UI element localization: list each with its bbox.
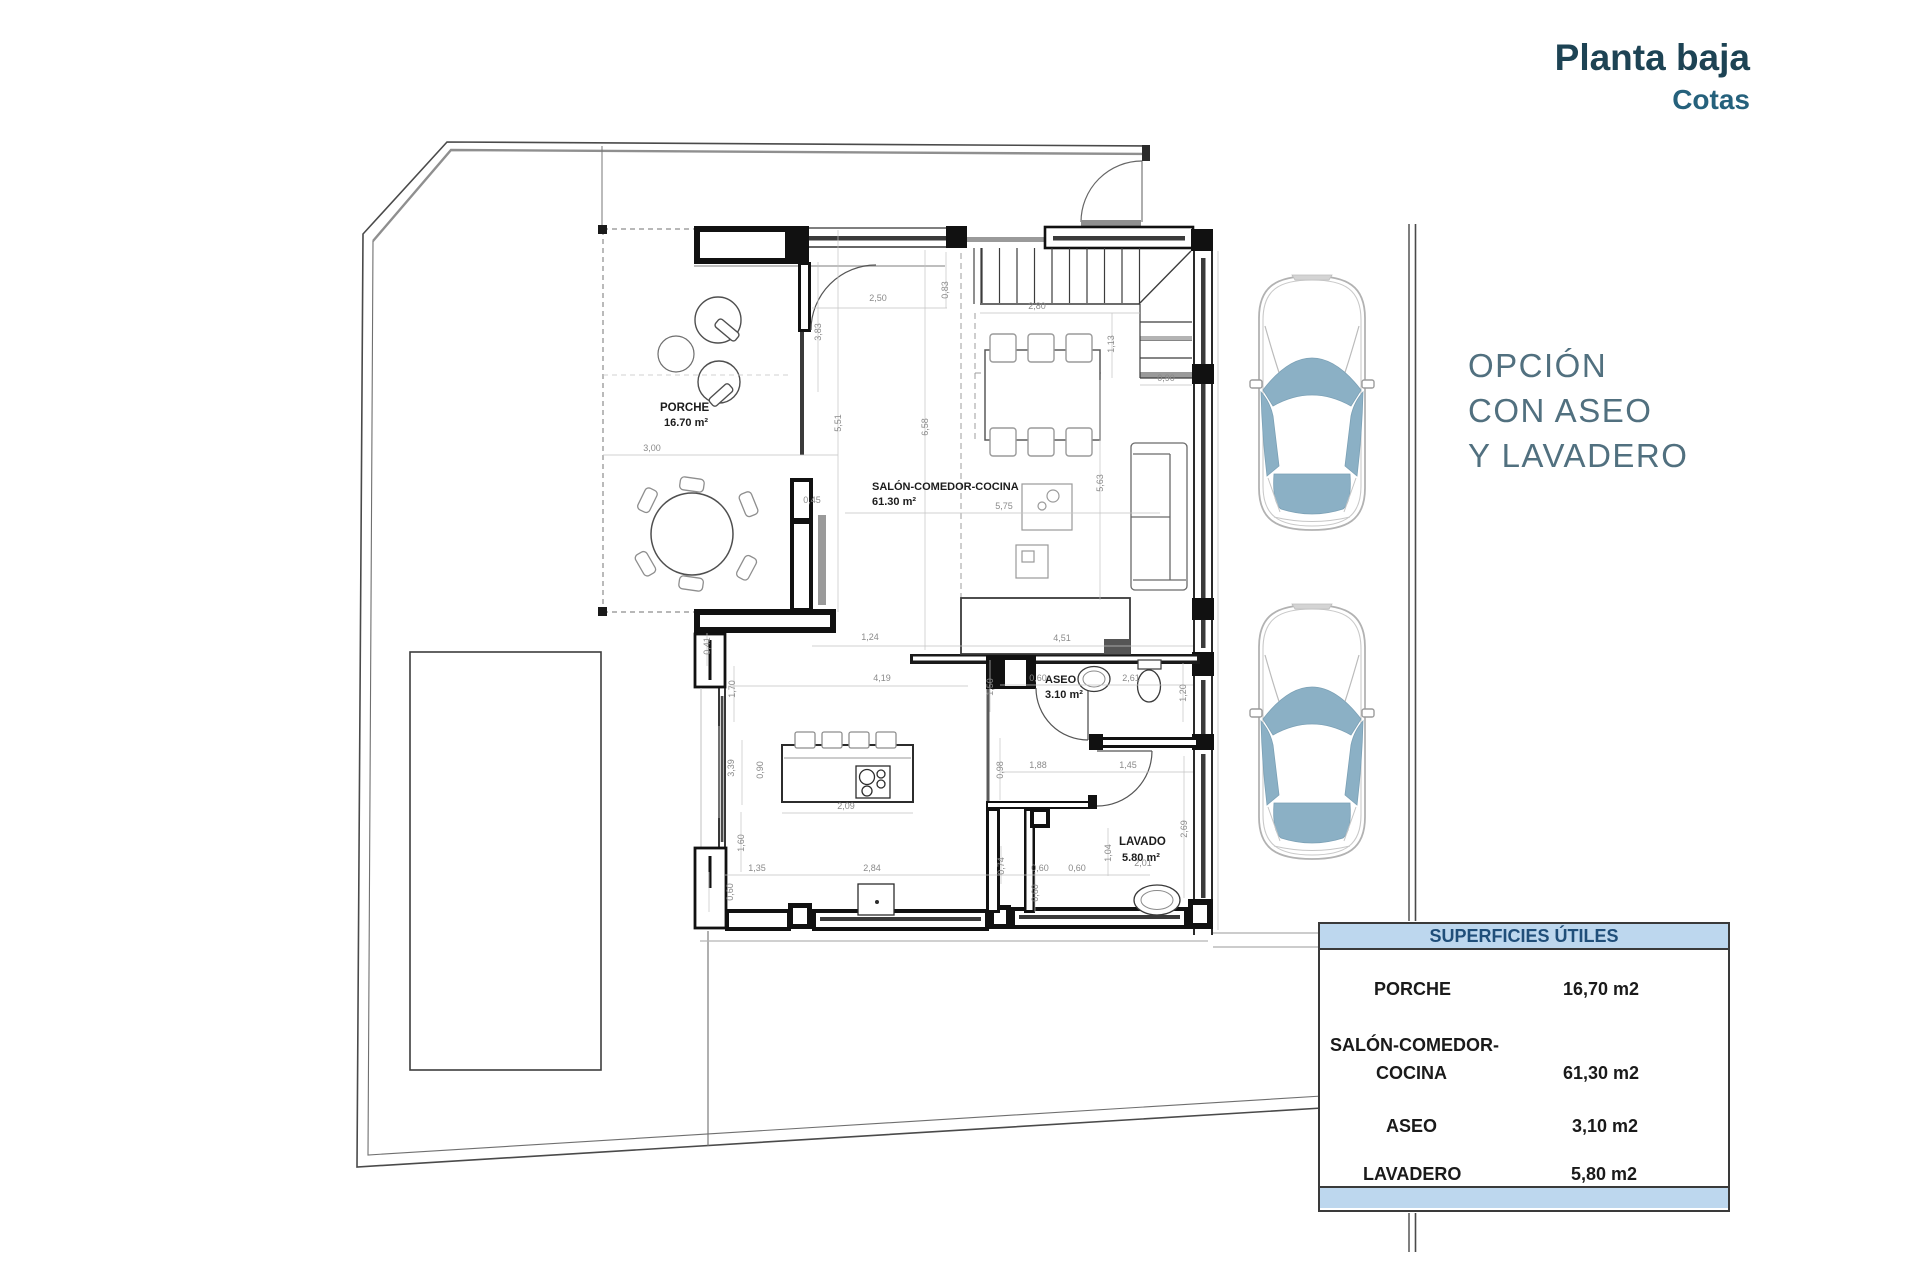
svg-text:61.30 m²: 61.30 m² — [872, 496, 916, 508]
svg-text:3,83: 3,83 — [813, 323, 823, 341]
svg-text:0,41: 0,41 — [702, 637, 712, 655]
svg-text:1,13: 1,13 — [1106, 335, 1116, 353]
svg-text:3,39: 3,39 — [726, 759, 736, 777]
svg-text:2,84: 2,84 — [863, 863, 881, 873]
svg-text:0,60: 0,60 — [1030, 884, 1040, 902]
svg-text:16.70 m²: 16.70 m² — [664, 417, 708, 429]
svg-text:3,00: 3,00 — [643, 443, 661, 453]
svg-text:1,35: 1,35 — [748, 863, 766, 873]
svg-text:1,70: 1,70 — [727, 680, 737, 698]
svg-text:1,20: 1,20 — [1178, 684, 1188, 702]
svg-text:ASEO: ASEO — [1045, 674, 1077, 686]
svg-text:0,83: 0,83 — [940, 281, 950, 299]
svg-text:6,58: 6,58 — [920, 418, 930, 436]
svg-text:5.80 m²: 5.80 m² — [1122, 852, 1160, 864]
svg-text:2,80: 2,80 — [1028, 301, 1046, 311]
svg-text:0,98: 0,98 — [995, 761, 1005, 779]
svg-text:0,60: 0,60 — [1068, 863, 1086, 873]
svg-text:2,69: 2,69 — [1179, 820, 1189, 838]
svg-text:1,45: 1,45 — [1119, 760, 1137, 770]
svg-text:0,74: 0,74 — [996, 857, 1006, 875]
svg-text:1,60: 1,60 — [736, 834, 746, 852]
svg-text:0,45: 0,45 — [803, 495, 821, 505]
svg-text:LAVADO: LAVADO — [1119, 836, 1166, 848]
svg-text:1,24: 1,24 — [861, 632, 879, 642]
svg-text:0,60: 0,60 — [725, 883, 735, 901]
svg-text:1,04: 1,04 — [1103, 844, 1113, 862]
svg-text:5,51: 5,51 — [833, 414, 843, 432]
svg-text:SALÓN-COMEDOR-COCINA: SALÓN-COMEDOR-COCINA — [872, 480, 1019, 493]
svg-text:3.10 m²: 3.10 m² — [1045, 689, 1083, 701]
svg-text:PORCHE: PORCHE — [660, 402, 710, 414]
svg-text:4,19: 4,19 — [873, 673, 891, 683]
svg-text:0,60: 0,60 — [1031, 863, 1049, 873]
svg-text:5,63: 5,63 — [1095, 474, 1105, 492]
svg-text:2,50: 2,50 — [869, 293, 887, 303]
svg-text:2,61: 2,61 — [1122, 673, 1140, 683]
svg-text:2,09: 2,09 — [837, 801, 855, 811]
svg-text:0,90: 0,90 — [755, 761, 765, 779]
svg-text:1,50: 1,50 — [985, 678, 995, 696]
svg-text:5,75: 5,75 — [995, 501, 1013, 511]
svg-text:0,90: 0,90 — [1157, 373, 1175, 383]
svg-text:4,51: 4,51 — [1053, 633, 1071, 643]
svg-text:1,88: 1,88 — [1029, 760, 1047, 770]
